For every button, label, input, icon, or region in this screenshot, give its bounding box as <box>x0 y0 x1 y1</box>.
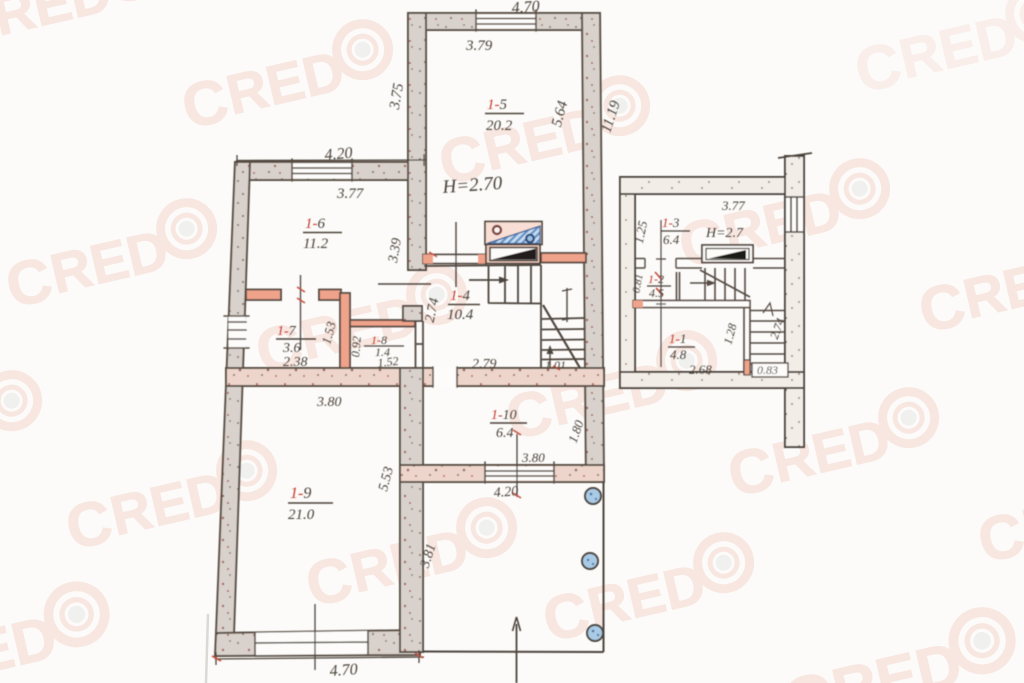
svg-text:1-6: 1-6 <box>305 216 326 232</box>
svg-text:11.2: 11.2 <box>303 236 329 252</box>
svg-text:3.80: 3.80 <box>521 450 545 465</box>
svg-text:1-7: 1-7 <box>277 324 297 339</box>
svg-text:10.4: 10.4 <box>447 307 474 323</box>
svg-text:1.01: 1.01 <box>545 358 566 372</box>
svg-text:1-1: 1-1 <box>669 331 686 346</box>
svg-text:1-5: 1-5 <box>487 97 508 113</box>
svg-text:0.92: 0.92 <box>348 336 364 358</box>
svg-text:4.70: 4.70 <box>511 0 540 17</box>
svg-text:3.6: 3.6 <box>282 341 301 356</box>
svg-text:4.5: 4.5 <box>649 286 664 300</box>
svg-text:1-9: 1-9 <box>290 485 311 502</box>
svg-text:3.79: 3.79 <box>465 38 493 54</box>
svg-text:1-4: 1-4 <box>450 288 471 304</box>
svg-text:4.70: 4.70 <box>329 661 358 680</box>
svg-text:6.4: 6.4 <box>496 426 514 441</box>
svg-text:4.8: 4.8 <box>670 347 687 362</box>
svg-text:4.20: 4.20 <box>493 484 518 501</box>
svg-text:1-10: 1-10 <box>491 408 517 423</box>
svg-text:2.79: 2.79 <box>472 357 497 372</box>
svg-text:0.83: 0.83 <box>757 363 778 377</box>
svg-text:1-3: 1-3 <box>662 215 680 230</box>
svg-text:20.2: 20.2 <box>486 118 513 134</box>
svg-text:2.38: 2.38 <box>283 355 308 370</box>
svg-text:H=2.70: H=2.70 <box>441 173 504 198</box>
svg-text:21.0: 21.0 <box>288 507 315 523</box>
svg-text:2.68: 2.68 <box>689 362 712 377</box>
svg-text:1-2: 1-2 <box>648 272 664 286</box>
svg-text:3.77: 3.77 <box>336 186 365 202</box>
svg-text:3.80: 3.80 <box>316 395 342 410</box>
svg-text:1.52: 1.52 <box>377 354 399 370</box>
svg-text:4.20: 4.20 <box>324 145 353 164</box>
svg-text:6.4: 6.4 <box>663 232 680 247</box>
svg-text:H=2.7: H=2.7 <box>705 226 744 241</box>
svg-text:3.77: 3.77 <box>721 198 745 213</box>
